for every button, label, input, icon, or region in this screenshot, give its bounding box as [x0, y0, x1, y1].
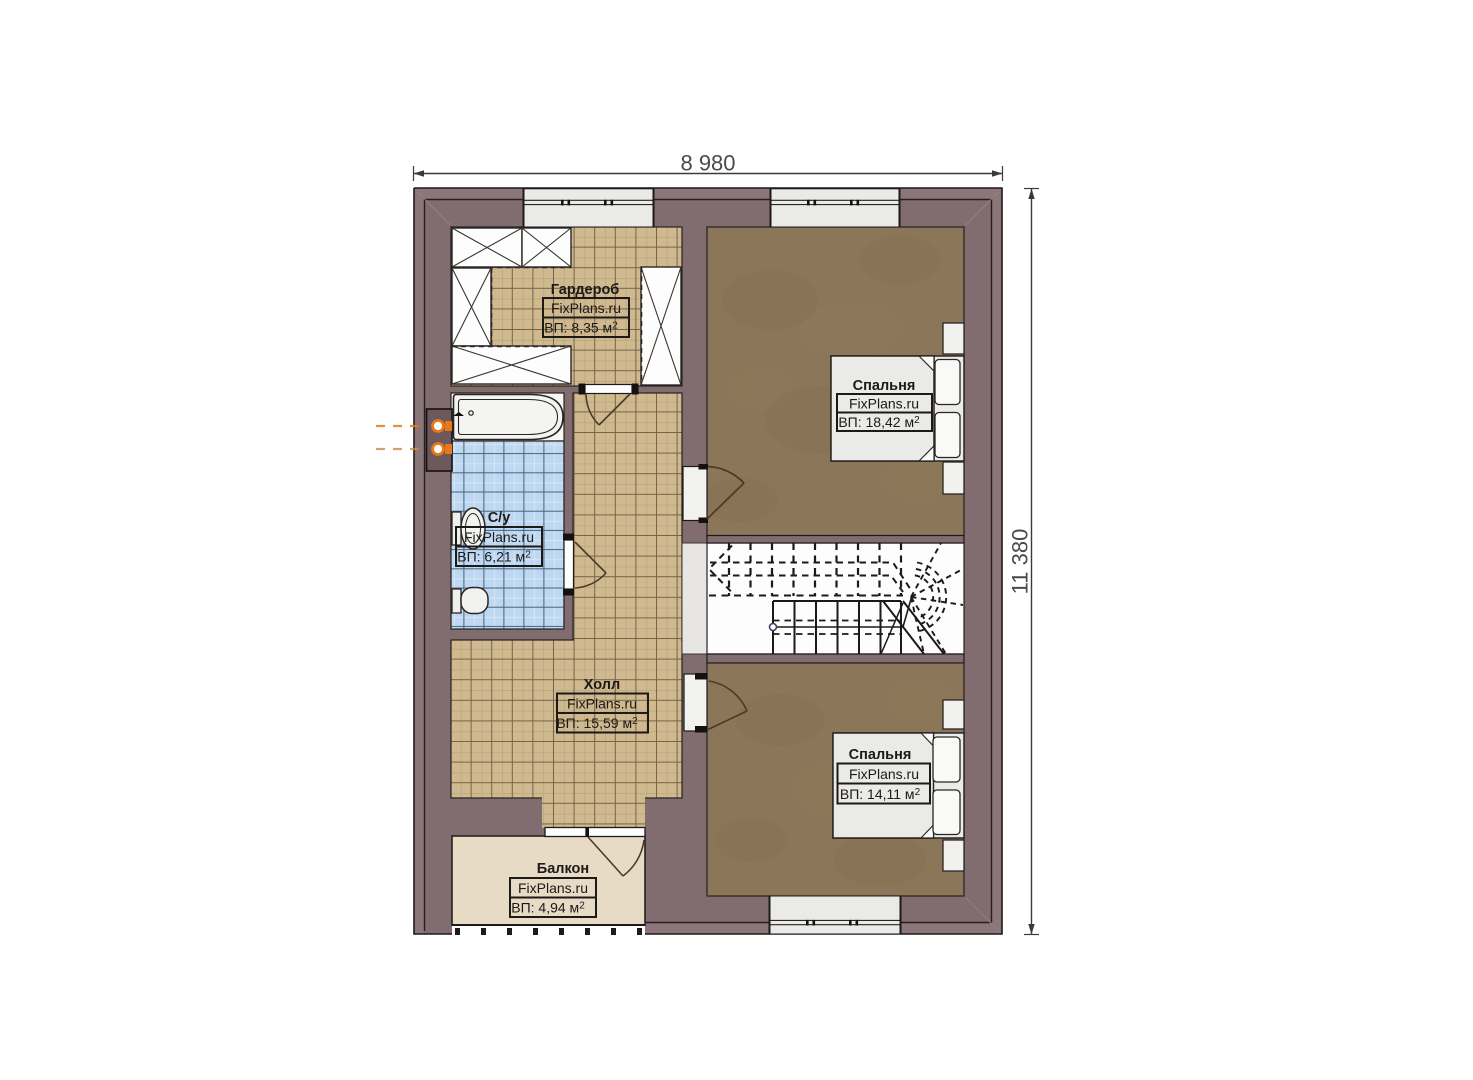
svg-text:ВП: 6,21 м2: ВП: 6,21 м2 — [457, 549, 531, 565]
svg-text:Гардероб: Гардероб — [551, 282, 620, 298]
svg-text:Спальня: Спальня — [853, 378, 916, 394]
svg-text:FixPlans.ru: FixPlans.ru — [518, 880, 588, 896]
svg-text:ВП: 18,42 м2: ВП: 18,42 м2 — [838, 414, 920, 430]
svg-text:ВП: 8,35 м2: ВП: 8,35 м2 — [544, 320, 618, 336]
svg-text:FixPlans.ru: FixPlans.ru — [551, 300, 621, 316]
svg-text:ВП: 15,59 м2: ВП: 15,59 м2 — [556, 715, 638, 731]
svg-text:Спальня: Спальня — [849, 747, 912, 763]
svg-text:8 980: 8 980 — [680, 151, 735, 176]
svg-text:FixPlans.ru: FixPlans.ru — [464, 529, 534, 545]
svg-text:ВП: 14,11 м2: ВП: 14,11 м2 — [840, 786, 921, 802]
svg-text:11 380: 11 380 — [1008, 529, 1033, 595]
svg-text:ВП: 4,94 м2: ВП: 4,94 м2 — [511, 900, 585, 916]
svg-text:FixPlans.ru: FixPlans.ru — [849, 766, 919, 782]
svg-text:С/у: С/у — [488, 510, 511, 526]
svg-text:FixPlans.ru: FixPlans.ru — [567, 696, 637, 712]
svg-text:Холл: Холл — [584, 677, 620, 693]
svg-text:Балкон: Балкон — [537, 861, 589, 877]
svg-text:FixPlans.ru: FixPlans.ru — [849, 396, 919, 412]
